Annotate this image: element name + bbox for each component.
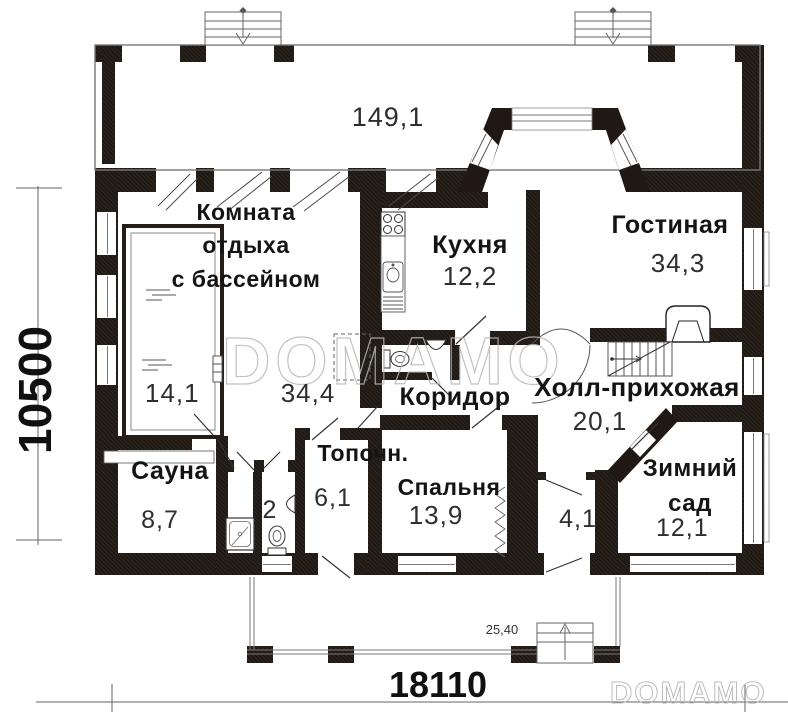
terrace-wall-left xyxy=(102,52,115,164)
window-outer-frame xyxy=(764,232,769,542)
entrance-stairs-icon xyxy=(575,7,651,45)
wall-tambour-top-a xyxy=(538,472,546,480)
bay-window xyxy=(458,108,650,192)
dimension-porch: 25,40 xyxy=(478,622,526,637)
wall-tambour-top-b xyxy=(586,472,595,480)
dimension-height: 10500 xyxy=(8,290,52,490)
wall-shower-top-b xyxy=(254,460,264,472)
wall-corridor-top-a xyxy=(382,330,455,345)
tambour-area: 4,1 xyxy=(554,505,602,534)
wall-kitchen-top xyxy=(382,192,488,208)
room-label-living: Гостиная xyxy=(598,210,742,240)
room-label-boiler: Топочн. xyxy=(298,440,428,468)
wall-sauna-top xyxy=(100,436,192,450)
wall-kitchen-right xyxy=(526,190,540,345)
window-left-2 xyxy=(97,275,116,318)
room-label-wintergarden: Зимний сад xyxy=(632,452,748,522)
wc-area: 2 xyxy=(256,496,284,525)
watermark-corner: DOMAMO xyxy=(610,675,767,710)
terrace-pillar xyxy=(648,45,675,62)
room-label-hall: Холл-прихожая xyxy=(522,372,752,403)
wintergarden-area: 12,1 xyxy=(656,514,708,543)
toilet-icon xyxy=(268,526,286,555)
dimension-width: 18110 xyxy=(360,664,516,706)
window-bottom-bedroom xyxy=(398,556,456,572)
wall-bedroom-right xyxy=(507,415,538,575)
shower-tray-icon xyxy=(226,518,254,550)
water-marks xyxy=(142,290,176,370)
window-terrace-4 xyxy=(386,168,436,192)
room-label-kitchen: Кухня xyxy=(420,230,520,260)
window-terrace-2 xyxy=(214,168,270,192)
terrace-area: 149,1 xyxy=(348,102,428,133)
pool-ladder-icon xyxy=(213,356,222,382)
wall-shower-top-a xyxy=(228,460,234,472)
porch xyxy=(247,577,620,654)
room-label-sauna: Сауна xyxy=(120,456,220,486)
wall-corridor-bottom-a xyxy=(380,415,470,430)
sauna-area: 8,7 xyxy=(134,506,186,535)
wall-pool-kitchen xyxy=(360,168,382,408)
room-label-corridor: Коридор xyxy=(385,382,525,412)
terrace-pillar xyxy=(274,45,294,62)
room-label-bedroom: Спальня xyxy=(388,474,510,502)
wall-wintergarden-top xyxy=(672,405,742,422)
window-terrace-1 xyxy=(156,168,196,192)
window-right-living xyxy=(744,228,762,290)
porch-column xyxy=(328,646,354,663)
porch-steps-icon xyxy=(537,623,593,663)
wall-corridor-top-b xyxy=(490,331,530,345)
wall-living-bottom xyxy=(590,328,742,342)
floor-plan: DOMAMO DOMAMO 149,1 Комната отдыха с бас… xyxy=(0,0,788,715)
terrace-pillar xyxy=(742,148,760,168)
hall-area: 20,1 xyxy=(572,406,628,437)
rest-room-area: 34,4 xyxy=(280,378,336,409)
kitchen-sink-icon xyxy=(381,236,405,312)
bedroom-area: 13,9 xyxy=(406,500,466,531)
wall-wc-right xyxy=(450,345,460,380)
porch-column xyxy=(594,646,620,663)
window-bottom-wc xyxy=(262,556,292,572)
pool-area: 14,1 xyxy=(145,378,197,409)
terrace-pillar xyxy=(735,45,762,62)
porch-column xyxy=(511,646,537,663)
wall-boiler-top-a xyxy=(295,428,310,440)
washbasin-icon xyxy=(287,495,296,513)
kitchen-area: 12,2 xyxy=(438,261,502,292)
door-bottom-boiler xyxy=(318,553,354,575)
entrance-stairs-icon xyxy=(205,7,281,45)
window-left-1 xyxy=(97,212,116,255)
window-terrace-3 xyxy=(290,168,348,192)
room-label-rest-room: Комната отдыха с бассейном xyxy=(157,196,335,296)
terrace-pillar xyxy=(180,45,206,62)
stove-icon xyxy=(381,212,405,236)
boiler-area: 6,1 xyxy=(310,484,356,513)
porch-column xyxy=(247,646,273,663)
door-bottom-porch xyxy=(544,553,590,575)
toilet-icon xyxy=(384,350,409,368)
interior-stairs-icon xyxy=(608,342,672,376)
living-area: 34,3 xyxy=(646,248,710,279)
window-left-3 xyxy=(97,345,116,385)
wall-wc-bottom xyxy=(382,372,432,380)
window-bottom-wintergarden xyxy=(630,556,736,572)
